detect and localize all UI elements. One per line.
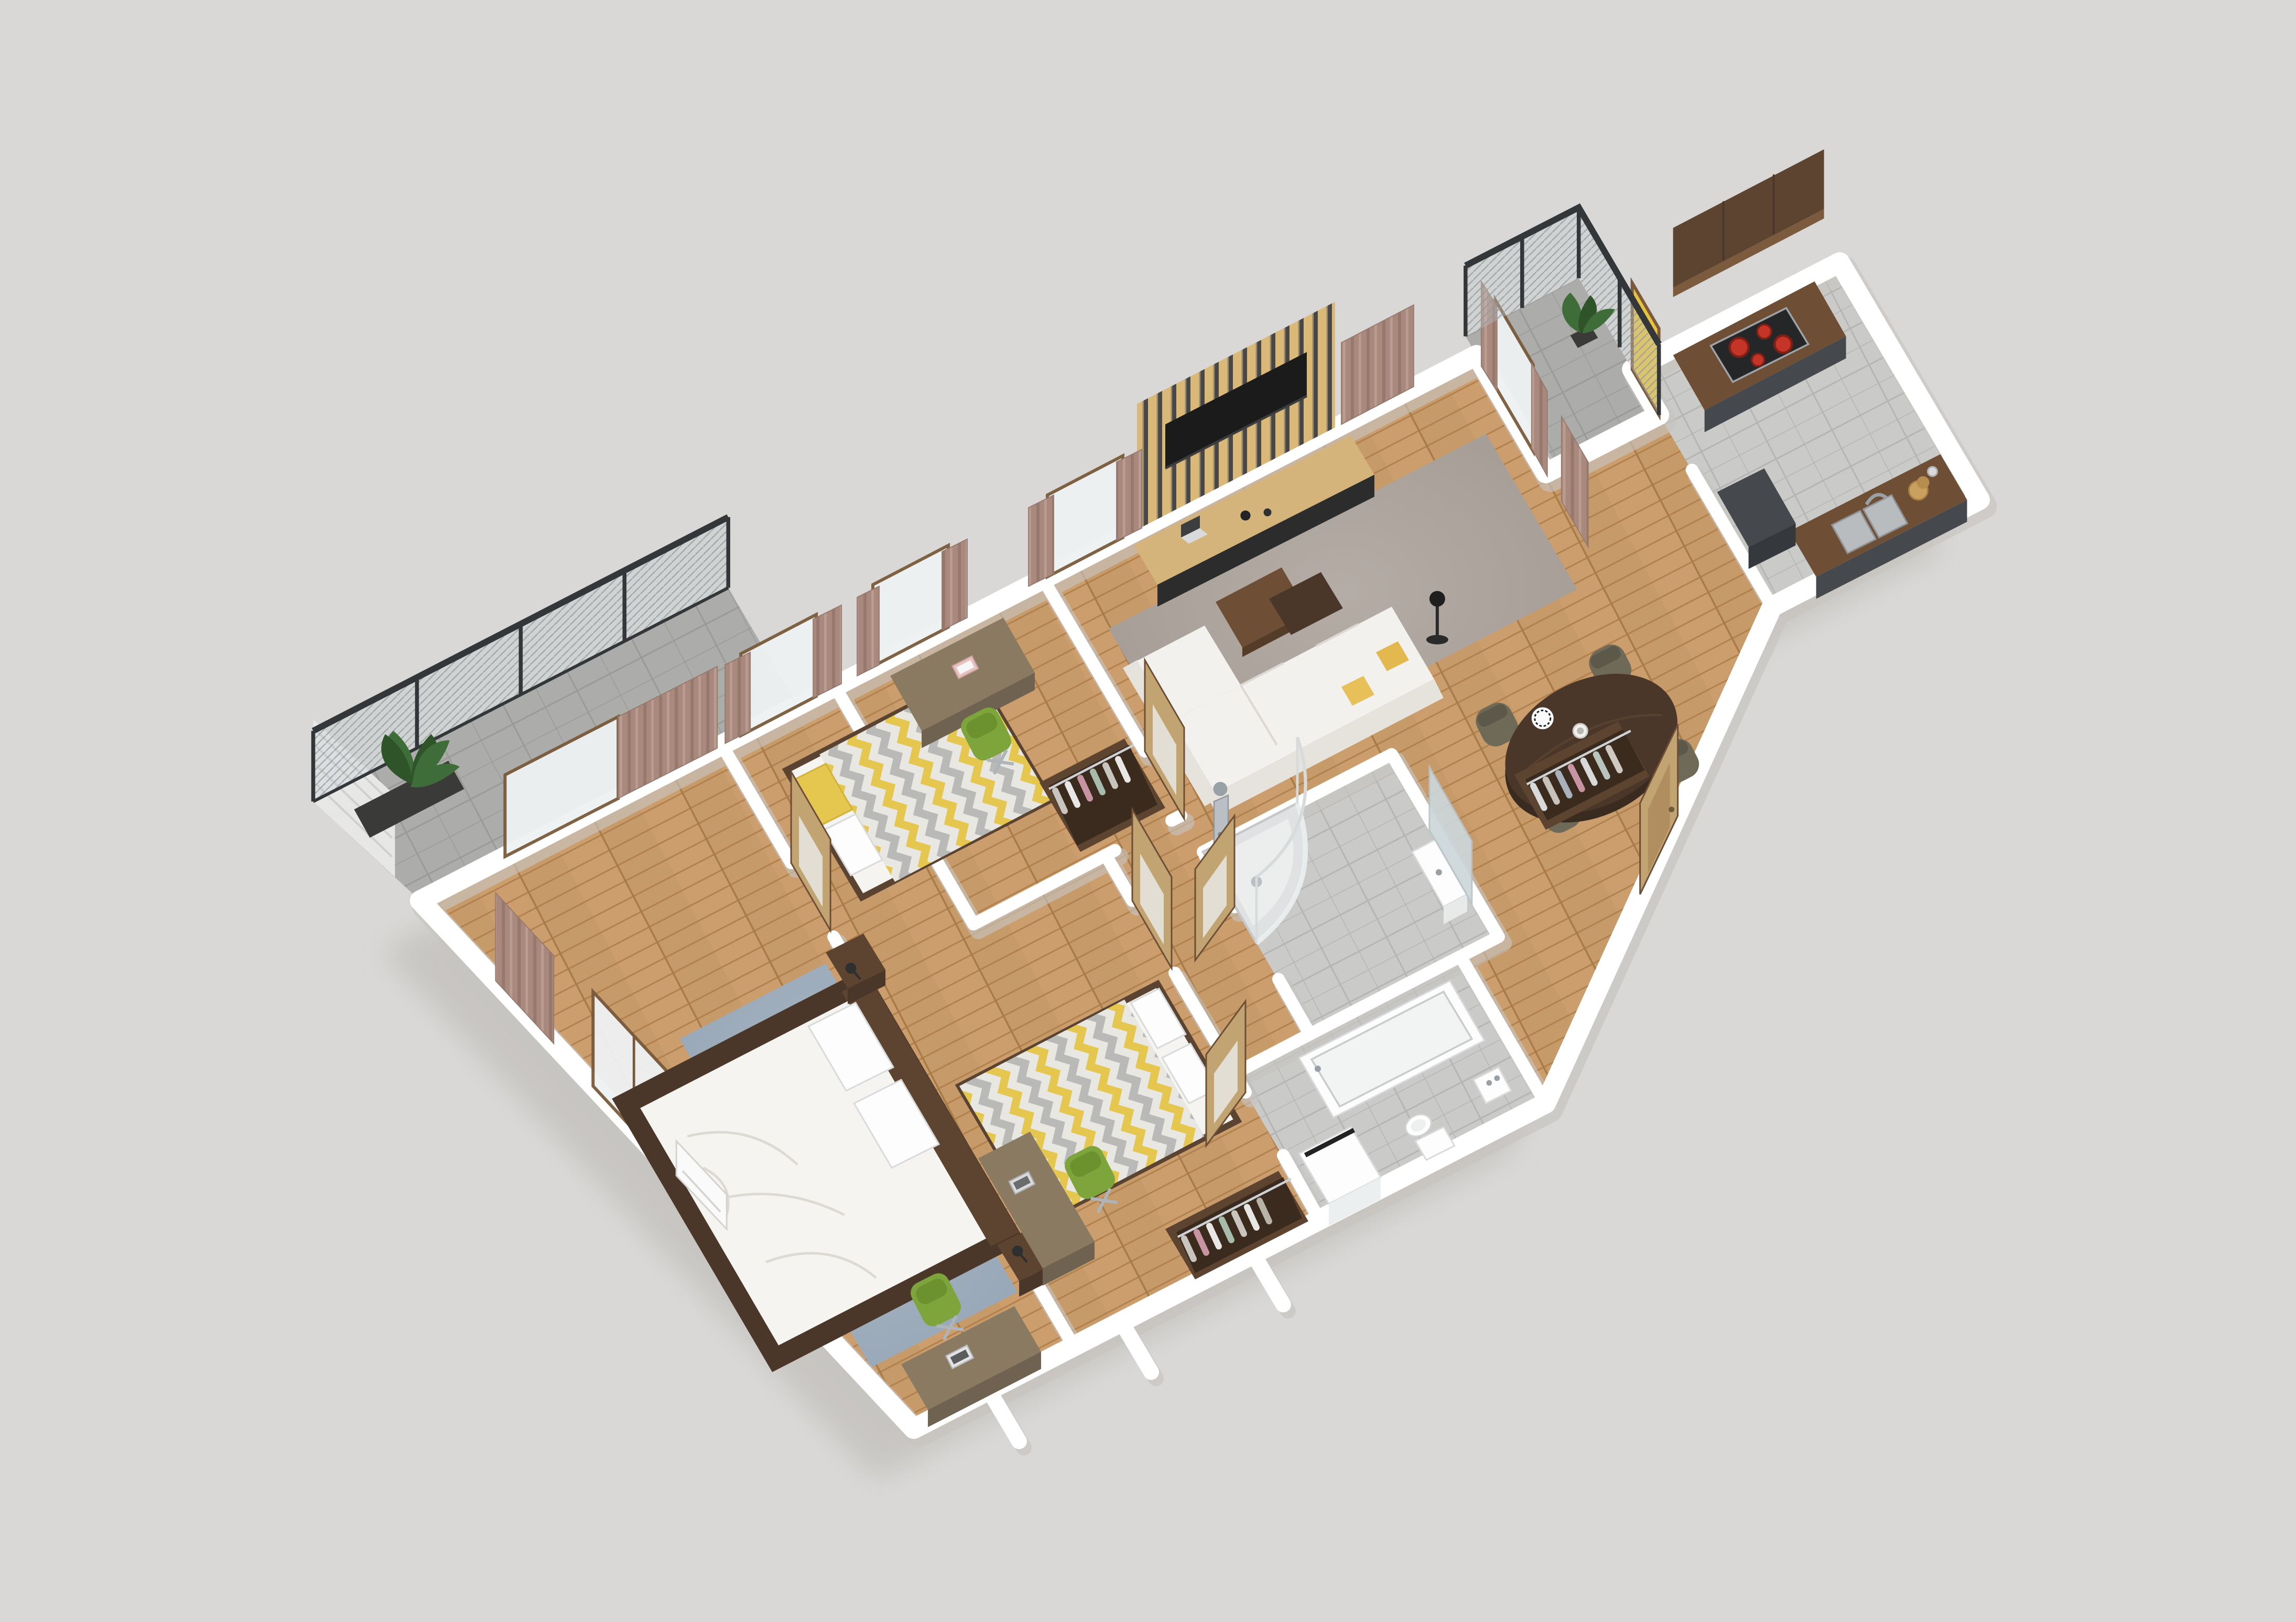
cup bbox=[1928, 467, 1937, 476]
floor-plan-render bbox=[0, 0, 2296, 1622]
curtain bbox=[942, 539, 967, 630]
burner bbox=[1757, 324, 1771, 339]
burner bbox=[1752, 354, 1764, 366]
curtain bbox=[813, 605, 841, 698]
utensil-jar bbox=[1573, 724, 1587, 738]
door-handle bbox=[1669, 807, 1674, 812]
vase bbox=[1263, 508, 1271, 516]
cutting-board bbox=[1917, 476, 1930, 489]
burner bbox=[1730, 338, 1749, 357]
curtain bbox=[857, 586, 879, 676]
vase bbox=[1240, 510, 1250, 520]
scene bbox=[313, 149, 1985, 1479]
burner bbox=[1774, 335, 1792, 353]
curtain bbox=[1117, 450, 1142, 541]
curtain bbox=[1028, 495, 1054, 586]
patterned-plate bbox=[1532, 707, 1554, 730]
curtain bbox=[725, 652, 750, 744]
apartment-isometric-svg bbox=[0, 0, 2296, 1622]
